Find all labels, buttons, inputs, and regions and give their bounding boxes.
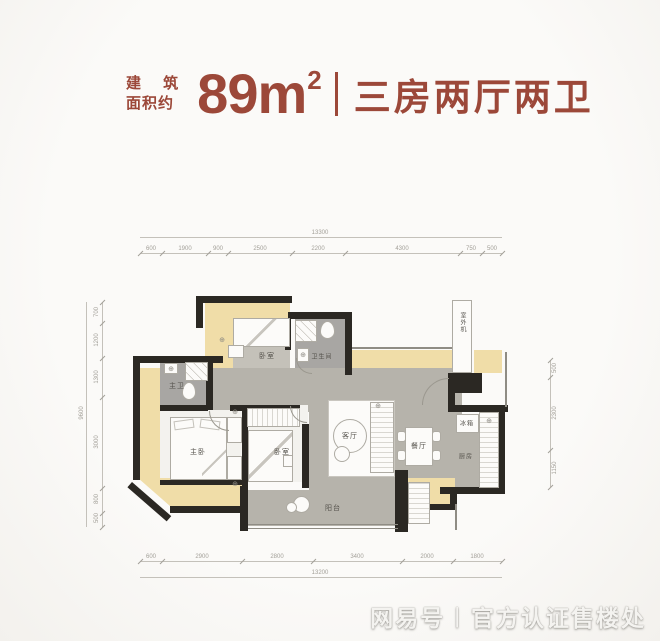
wall — [288, 312, 352, 319]
tick — [100, 525, 106, 531]
dim-left-3: 3000 — [94, 435, 100, 448]
room-label-fridge: 冰箱 — [460, 419, 474, 428]
dim-left-4: 800 — [94, 494, 100, 504]
dim-left-1: 1200 — [94, 333, 100, 346]
window-line — [352, 347, 452, 349]
tick — [500, 251, 506, 257]
dim-top-4: 2200 — [311, 246, 324, 252]
bay-window-left — [138, 368, 160, 478]
dim-bottom-total: 13200 — [312, 570, 329, 576]
dim-left-0: 700 — [94, 307, 100, 317]
layout-title: 三房两厅两卫 — [354, 67, 594, 121]
dim-bottom-0: 600 — [146, 554, 156, 560]
wall — [160, 405, 208, 411]
dim-bottom-5: 1800 — [470, 554, 483, 560]
area-caption-line2: 面积约 — [126, 94, 187, 114]
dim-line-top-segments — [140, 253, 502, 254]
watermark-separator: | — [454, 603, 462, 629]
balcony-floor — [248, 490, 398, 526]
room-label-master-bedroom: 主卧 — [190, 447, 206, 457]
wall — [452, 373, 482, 393]
header: 建 筑 面积约 89m2 三房两厅两卫 — [126, 66, 594, 122]
dim-right-1: 2300 — [552, 406, 558, 419]
dim-left-5: 500 — [94, 513, 100, 523]
window-line — [248, 524, 398, 525]
dining-chair — [432, 450, 441, 461]
bay-window-right-top — [474, 350, 502, 373]
dim-top-7: 500 — [487, 246, 497, 252]
room-label-kitchen: 厨房 — [459, 452, 473, 461]
plant-icon: ⊕ — [375, 402, 381, 410]
header-divider — [335, 72, 338, 116]
dim-line-left-segments — [102, 302, 103, 527]
room-label-bedroom-top: 卧室 — [259, 351, 275, 361]
dim-line-top-total — [140, 237, 502, 238]
room-label-bathroom: 卫生间 — [311, 352, 332, 361]
wall — [345, 318, 352, 375]
rug-round-small — [334, 446, 350, 462]
ac-unit-box — [452, 300, 472, 373]
area-caption-line1: 建 筑 — [126, 74, 187, 94]
fixture-icon: ⊕ — [232, 480, 238, 488]
cabinet-utility — [408, 482, 430, 524]
dim-top-0: 600 — [146, 246, 156, 252]
dining-chair — [432, 431, 441, 442]
dim-bottom-4: 2000 — [420, 554, 433, 560]
fixture-icon: ⊕ — [232, 408, 238, 416]
dim-bottom-1: 2900 — [195, 554, 208, 560]
nightstand — [227, 417, 242, 443]
lounge-chair-small — [286, 502, 297, 513]
room-label-balcony: 阳台 — [325, 503, 341, 513]
bed-top — [233, 318, 290, 347]
dim-line-bottom-total — [140, 577, 502, 578]
wall — [196, 296, 203, 328]
sofa — [370, 402, 394, 473]
wall — [200, 296, 292, 303]
sink-icon: ⊕ — [486, 417, 492, 425]
dim-line-right-segments — [550, 360, 551, 487]
dim-top-2: 900 — [213, 246, 223, 252]
room-label-living: 客厅 — [342, 431, 358, 441]
watermark-text: 官方认证售楼处 — [471, 599, 646, 633]
wall — [395, 470, 408, 532]
dim-right-2: 1150 — [552, 462, 558, 475]
window-line — [455, 504, 457, 530]
fixture-icon: ⊕ — [219, 336, 225, 344]
shower-bathroom — [295, 320, 317, 342]
window-line — [505, 352, 507, 407]
dim-line-bottom-segments — [140, 561, 502, 562]
dim-top-5: 4300 — [395, 246, 408, 252]
area-number: 89m — [197, 62, 306, 125]
dim-bottom-3: 3400 — [350, 554, 363, 560]
dim-left-total: 9600 — [79, 406, 85, 419]
toilet-bathroom — [320, 321, 335, 339]
kitchen-floor — [455, 433, 480, 488]
tick — [500, 559, 506, 565]
window-line — [248, 528, 398, 529]
wall — [170, 506, 246, 513]
room-label-bedroom-mid: 卧室 — [274, 447, 290, 457]
dining-chair — [397, 431, 406, 442]
watermark: 网易号 | 官方认证售楼处 — [370, 599, 646, 633]
dim-top-3: 2500 — [253, 246, 266, 252]
dresser-top — [228, 345, 244, 358]
area-value: 89m2 — [197, 66, 321, 122]
dim-bottom-2: 2800 — [270, 554, 283, 560]
dim-top-6: 750 — [466, 246, 476, 252]
nightstand — [227, 456, 242, 480]
ac-unit-label: 室外机 — [458, 312, 467, 333]
room-label-dining: 餐厅 — [411, 441, 427, 451]
watermark-brand: 网易号 — [370, 599, 445, 633]
wall — [133, 361, 140, 480]
fixture-icon: ⊕ — [168, 365, 174, 373]
wall — [240, 486, 248, 531]
area-caption: 建 筑 面积约 — [126, 74, 187, 115]
fixture-icon: ⊕ — [300, 351, 306, 359]
dim-top-1: 1900 — [178, 246, 191, 252]
wall — [498, 405, 505, 489]
tick — [548, 485, 554, 491]
area-exponent: 2 — [307, 65, 320, 95]
dim-top-total: 13300 — [312, 230, 329, 236]
dim-line-left-total — [86, 302, 87, 527]
dim-left-2: 1300 — [94, 370, 100, 383]
room-label-master-bath: 主卫 — [169, 381, 185, 391]
dim-right-0: 500 — [552, 363, 558, 373]
floor-plan: ⊕ ⊕ ⊕ ⊕ ⊕ ⊕ ⊕ 室外机 卧室 卫生间 主卫 主卧 卧室 客厅 餐厅 … — [110, 228, 560, 588]
shower-master-bath — [185, 362, 208, 381]
wall — [302, 424, 309, 488]
dining-chair — [397, 450, 406, 461]
